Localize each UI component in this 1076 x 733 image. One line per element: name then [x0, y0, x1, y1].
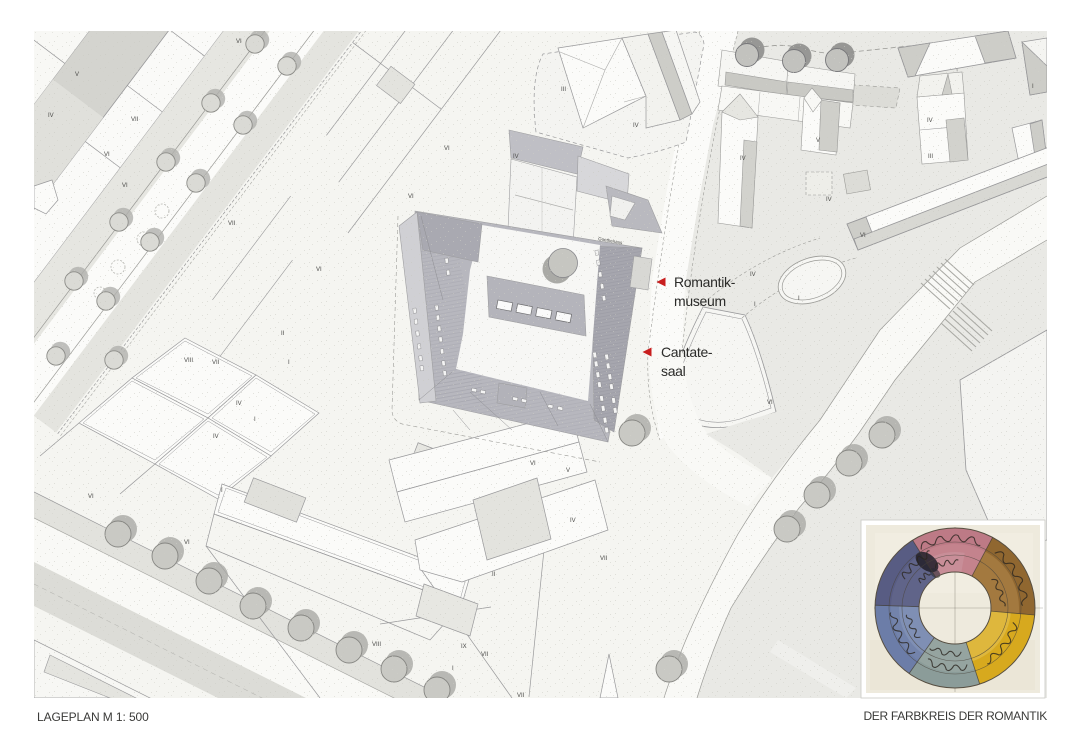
svg-text:VI: VI — [88, 494, 94, 500]
svg-text:LAGEPLAN M 1: 500: LAGEPLAN M 1: 500 — [37, 710, 149, 724]
svg-text:VI: VI — [530, 461, 536, 467]
svg-text:II: II — [281, 331, 285, 337]
svg-text:IV: IV — [750, 272, 756, 278]
svg-text:IV: IV — [513, 154, 519, 160]
svg-text:VI: VI — [316, 267, 322, 273]
svg-text:VII: VII — [228, 221, 236, 227]
svg-text:VII: VII — [481, 652, 489, 658]
svg-text:IV: IV — [213, 434, 219, 440]
svg-text:VIII: VIII — [184, 358, 193, 364]
svg-text:IV: IV — [236, 401, 242, 407]
svg-text:VI: VI — [860, 233, 866, 239]
svg-text:V: V — [816, 138, 820, 144]
svg-text:VI: VI — [236, 39, 242, 45]
svg-text:V: V — [566, 468, 570, 474]
svg-text:II: II — [492, 572, 496, 578]
svg-text:IX: IX — [461, 644, 467, 650]
svg-text:saal: saal — [661, 363, 686, 379]
svg-text:VII: VII — [517, 693, 525, 699]
svg-text:DER FARBKREIS DER ROMANTIK: DER FARBKREIS DER ROMANTIK — [863, 709, 1047, 723]
svg-text:VI: VI — [104, 152, 110, 158]
svg-text:V: V — [75, 72, 79, 78]
svg-text:VI: VI — [184, 540, 190, 546]
svg-text:VIII: VIII — [372, 642, 381, 648]
svg-text:VI: VI — [767, 400, 773, 406]
svg-text:museum: museum — [674, 293, 726, 309]
svg-text:IV: IV — [740, 156, 746, 162]
svg-text:Romantik-: Romantik- — [674, 274, 736, 290]
svg-text:IV: IV — [633, 123, 639, 129]
svg-text:VII: VII — [131, 117, 139, 123]
svg-text:IV: IV — [48, 113, 54, 119]
svg-text:VI: VI — [408, 194, 414, 200]
svg-text:VII: VII — [600, 556, 608, 562]
svg-text:Cantate-: Cantate- — [661, 344, 713, 360]
svg-text:III: III — [928, 154, 933, 160]
svg-text:IV: IV — [927, 118, 933, 124]
svg-text:IV: IV — [826, 197, 832, 203]
svg-text:IV: IV — [570, 518, 576, 524]
svg-text:VII: VII — [212, 360, 220, 366]
svg-text:VI: VI — [122, 183, 128, 189]
svg-text:III: III — [561, 87, 566, 93]
svg-text:VI: VI — [444, 146, 450, 152]
